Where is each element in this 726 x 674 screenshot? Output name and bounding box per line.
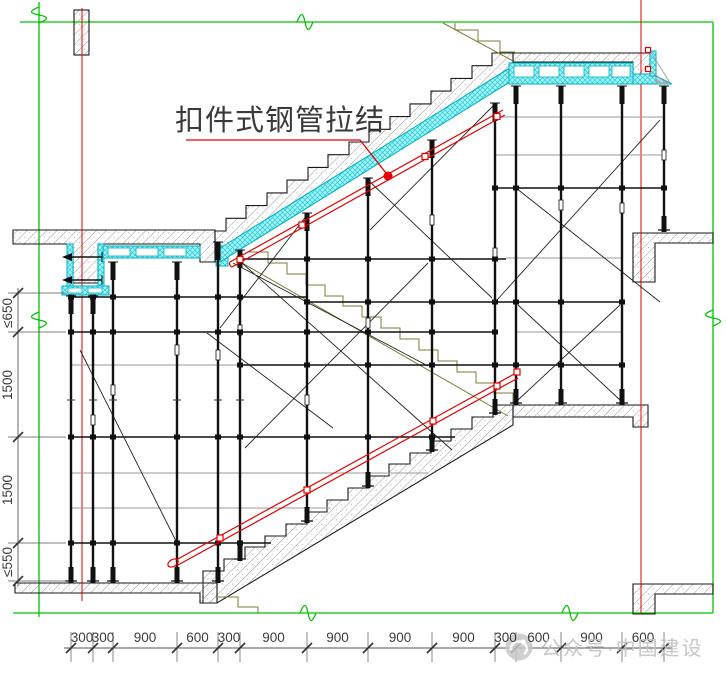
left-dim-label: ≤550 bbox=[0, 539, 16, 585]
left-dim-label: ≤650 bbox=[0, 290, 16, 336]
lower-stair-flight bbox=[203, 405, 513, 603]
axis-lines-green bbox=[13, 2, 721, 621]
stair-scaffold-section-drawing: 扣件式钢管拉结 300 300 900 600 300 900 900 900 … bbox=[0, 0, 726, 674]
left-dim-label: 1500 bbox=[0, 362, 16, 408]
bottom-dim-label: 900 bbox=[254, 630, 294, 646]
bottom-dim-label: 900 bbox=[125, 630, 165, 646]
flight-soffit-form bbox=[220, 66, 513, 262]
bottom-dim-label: 300 bbox=[209, 630, 249, 646]
callout-label: 扣件式钢管拉结 bbox=[175, 97, 385, 139]
bottom-dim-label: 900 bbox=[444, 630, 484, 646]
leader-target-dot bbox=[384, 172, 393, 181]
mid-landing-slab bbox=[513, 405, 648, 427]
bottom-dim-label: 900 bbox=[318, 630, 358, 646]
bottom-dim-label: 300 bbox=[83, 630, 123, 646]
ground-floor-slab bbox=[15, 583, 217, 603]
middle-flight-steps bbox=[249, 252, 513, 404]
watermark-text: 公众号·中国建设 bbox=[541, 632, 704, 661]
mid-right-floor bbox=[633, 233, 713, 282]
bottom-dim-label: 900 bbox=[380, 630, 420, 646]
ground-right-floor bbox=[633, 584, 713, 614]
dimension-chain-left bbox=[8, 288, 66, 586]
left-dim-label: 1500 bbox=[0, 467, 16, 513]
